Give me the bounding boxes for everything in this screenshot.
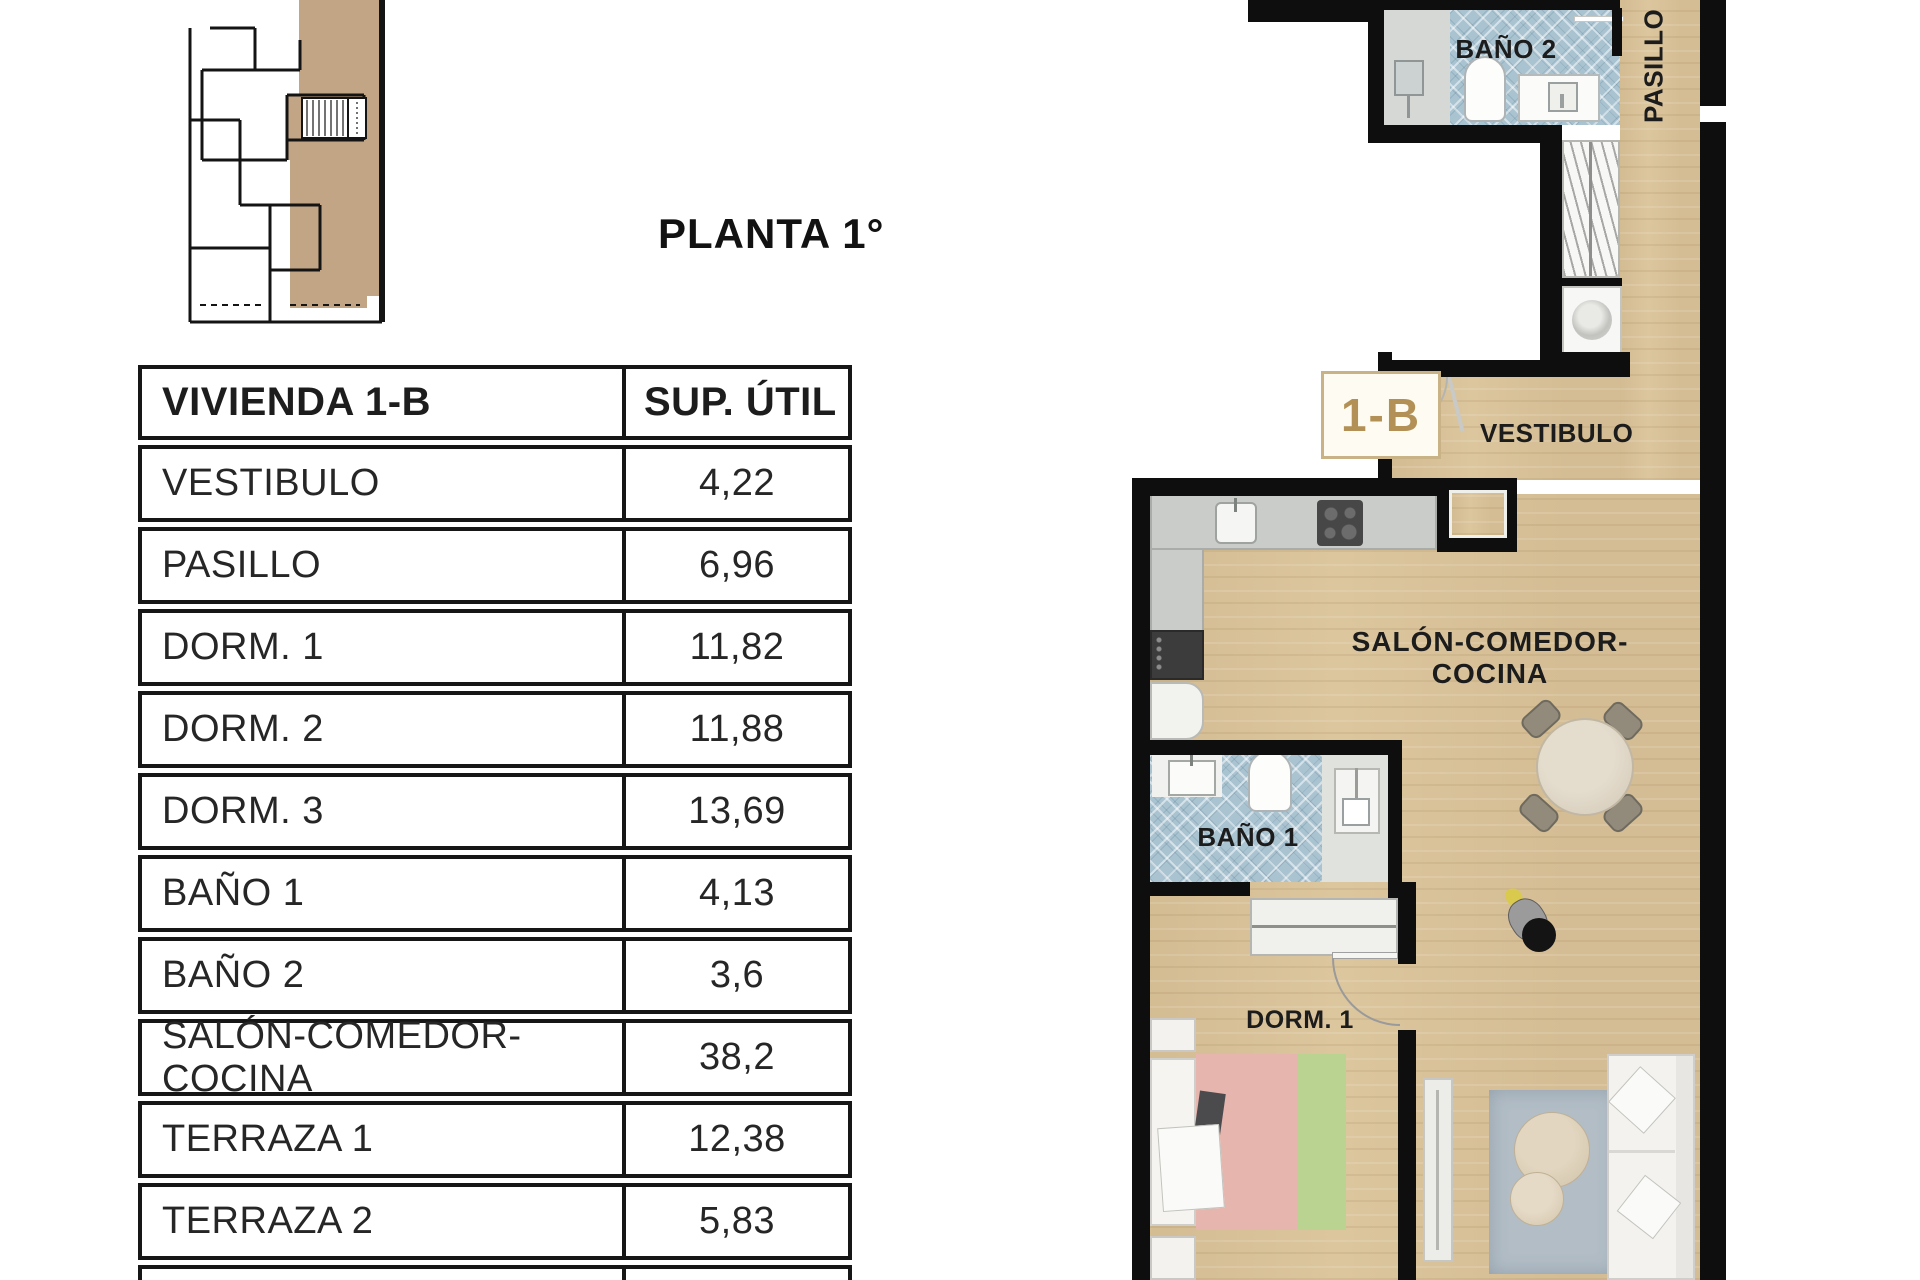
wall-divider <box>1562 278 1622 286</box>
kitchen-faucet <box>1234 498 1237 512</box>
wall-outer-right <box>1700 0 1726 1280</box>
wall <box>1540 125 1562 360</box>
wall <box>1388 740 1402 898</box>
nightstand-bottom <box>1150 1236 1196 1280</box>
wall <box>1132 740 1402 755</box>
pouf-small <box>1510 1172 1564 1226</box>
bedroom1-label: DORM. 1 <box>1240 1006 1360 1035</box>
wall <box>1132 478 1437 496</box>
wall-outer-left <box>1132 478 1150 1280</box>
niche-shelf <box>1449 490 1507 538</box>
wall <box>1398 1030 1416 1280</box>
bathroom1-shower-tray <box>1342 798 1370 826</box>
wall <box>1368 0 1620 10</box>
dining-table <box>1536 718 1634 816</box>
sliding-door-groove <box>1436 1090 1439 1250</box>
bed-blanket-green <box>1298 1054 1346 1230</box>
bed-pillow <box>1157 1124 1225 1212</box>
nightstand-top <box>1150 1018 1196 1052</box>
washing-machine-drum <box>1572 300 1612 340</box>
wall-joint-gap <box>1700 106 1726 122</box>
bathroom1-shower-pole <box>1355 768 1358 802</box>
oven-icon <box>1150 630 1204 680</box>
bathroom2-label: BAÑO 2 <box>1448 34 1564 65</box>
bathroom1-toilet-icon <box>1248 750 1292 812</box>
bathroom2-sink-icon <box>1394 60 1424 96</box>
bathroom2-faucet <box>1560 94 1564 108</box>
vestibule-label: VESTIBULO <box>1480 418 1630 449</box>
bathroom2-sink-stand <box>1407 96 1410 118</box>
bathroom1-label: BAÑO 1 <box>1190 822 1306 853</box>
wall <box>1612 8 1622 56</box>
kitchen-counter-left <box>1150 548 1204 634</box>
wardrobe-rail <box>1589 142 1592 276</box>
fridge-icon <box>1150 682 1204 740</box>
unit-badge: 1-B <box>1321 371 1441 459</box>
unit-badge-label: 1-B <box>1341 388 1421 442</box>
wall <box>1248 0 1368 22</box>
wall <box>1398 882 1416 964</box>
wall <box>1368 125 1560 143</box>
sofa-backrest <box>1676 1056 1693 1278</box>
hallway-label: PASILLO <box>1636 8 1672 124</box>
bathroom2-toilet-icon <box>1464 56 1506 122</box>
bedroom-wardrobe-rail <box>1252 925 1396 928</box>
floor-plan-page: PLANTA 1° VIVIENDA 1-B SUP. ÚTIL VESTIBU… <box>0 0 1920 1280</box>
kitchen-counter-top <box>1150 494 1437 550</box>
toy-balloon <box>1522 918 1556 952</box>
wall <box>1368 0 1384 143</box>
wall <box>1132 882 1250 896</box>
floor-plan: BAÑO 2 BAÑO 1 <box>0 0 1920 1280</box>
bathroom1-faucet <box>1190 754 1193 766</box>
living-room-label: SALÓN-COMEDOR-COCINA <box>1330 626 1650 690</box>
stove-icon <box>1317 500 1363 546</box>
sofa-seam <box>1609 1150 1675 1153</box>
